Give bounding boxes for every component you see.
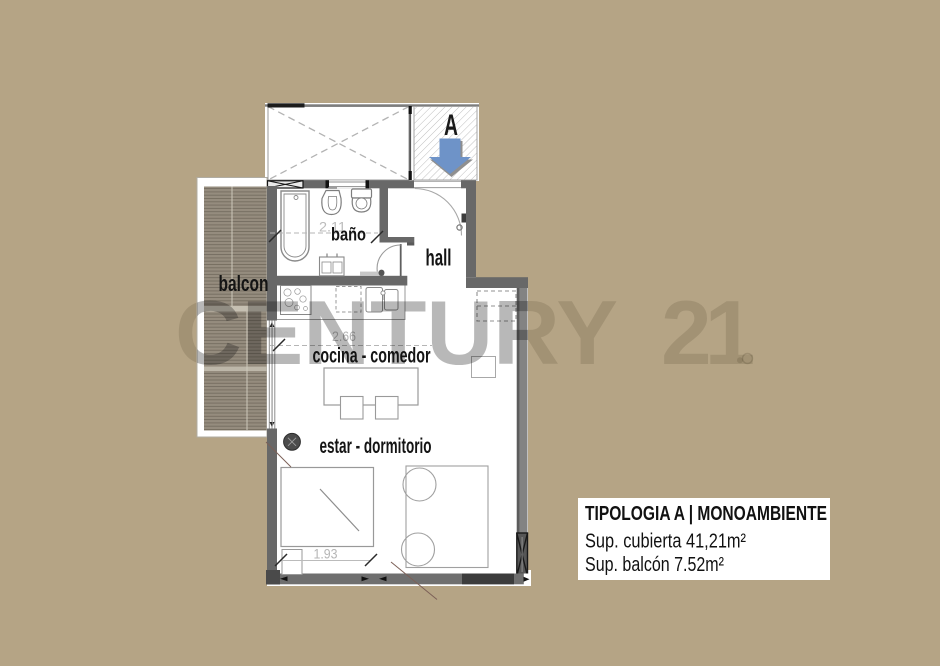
svg-text:1.93: 1.93 xyxy=(314,547,338,562)
svg-text:Sup. balcón 7.52m²: Sup. balcón 7.52m² xyxy=(585,554,724,576)
svg-text:A: A xyxy=(444,109,458,142)
svg-text:Sup. cubierta 41,21m²: Sup. cubierta 41,21m² xyxy=(585,531,746,553)
svg-text:hall: hall xyxy=(426,245,452,271)
svg-text:baño: baño xyxy=(331,224,366,245)
svg-text:estar - dormitorio: estar - dormitorio xyxy=(320,435,432,458)
svg-text:21: 21 xyxy=(661,283,754,384)
svg-text:TIPOLOGIA A | MONOAMBIENTE: TIPOLOGIA A | MONOAMBIENTE xyxy=(585,503,827,525)
